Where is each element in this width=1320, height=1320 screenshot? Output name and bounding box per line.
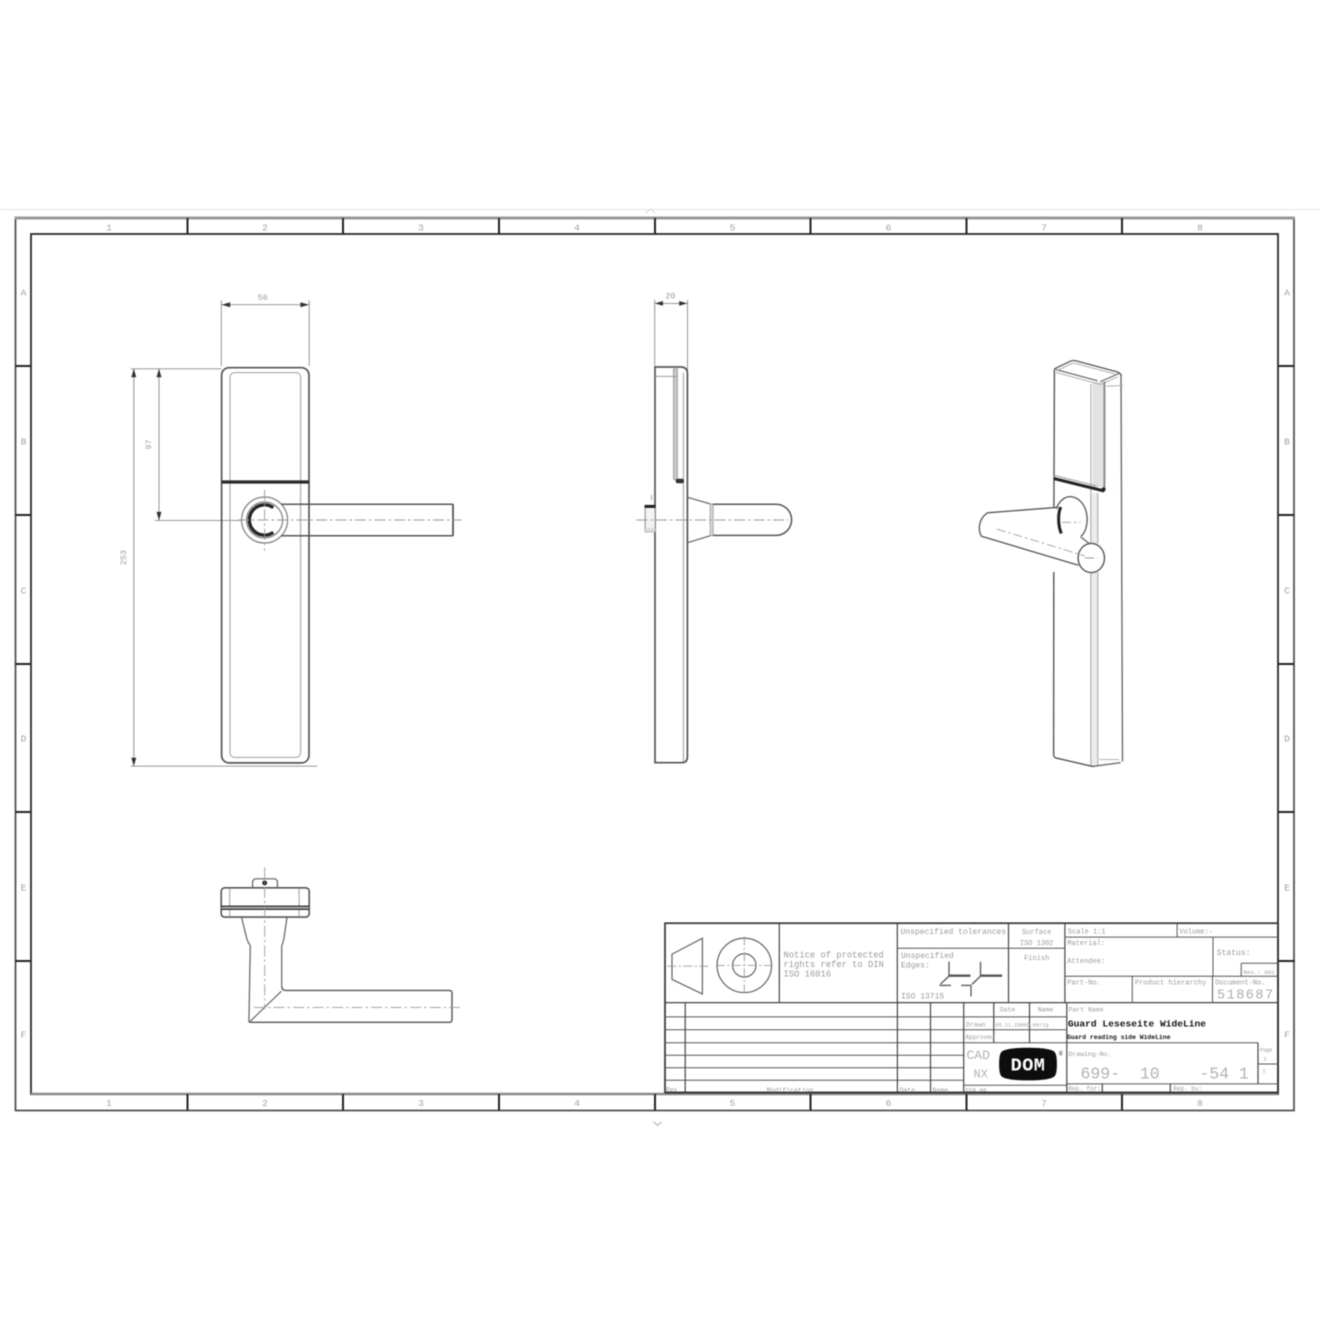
svg-text:Unspecified tolerances: Unspecified tolerances (901, 928, 1007, 937)
svg-text:5: 5 (730, 1098, 736, 1109)
svg-text:Drawn: Drawn (966, 1022, 986, 1029)
svg-text:ISO 1302: ISO 1302 (1020, 940, 1054, 948)
svg-text:Volume:-: Volume:- (1179, 928, 1213, 936)
svg-text:D: D (1284, 734, 1290, 745)
svg-text:518687: 518687 (1217, 989, 1275, 1004)
svg-text:Part-No.: Part-No. (1067, 980, 1101, 988)
svg-text:Product hierarchy: Product hierarchy (1135, 980, 1206, 988)
svg-text:Scale 1:1: Scale 1:1 (1068, 928, 1106, 936)
svg-text:6: 6 (886, 223, 892, 234)
svg-text:Guard reading side WideLine: Guard reading side WideLine (1067, 1034, 1171, 1041)
svg-text:3: 3 (418, 1098, 424, 1109)
svg-text:3: 3 (418, 223, 424, 234)
svg-text:4: 4 (574, 223, 580, 234)
svg-text:Surface: Surface (1022, 929, 1051, 937)
svg-text:1: 1 (106, 223, 112, 234)
svg-text:F: F (21, 1030, 27, 1041)
svg-text:E: E (21, 883, 27, 894)
svg-text:Part Name: Part Name (1069, 1007, 1104, 1014)
svg-text:B: B (21, 437, 27, 448)
svg-text:NX: NX (974, 1067, 988, 1081)
svg-text:Rev: Rev (666, 1087, 677, 1094)
svg-text:Guard Leseseite WideLine: Guard Leseseite WideLine (1068, 1019, 1206, 1030)
svg-text:DOM: DOM (1011, 1056, 1046, 1077)
svg-text:DIN A0: DIN A0 (966, 1087, 987, 1094)
svg-text:Document-No.: Document-No. (1215, 980, 1265, 988)
svg-text:F: F (1284, 1030, 1290, 1041)
svg-text:4: 4 (574, 1098, 580, 1109)
svg-text:Modification: Modification (767, 1087, 814, 1094)
svg-text:CAD: CAD (967, 1048, 991, 1063)
svg-text:Approved: Approved (966, 1034, 995, 1041)
svg-text:Status:: Status: (1217, 949, 1251, 958)
svg-text:Unspecified: Unspecified (901, 952, 954, 961)
svg-text:20: 20 (665, 292, 675, 302)
svg-text:7: 7 (1041, 223, 1047, 234)
svg-text:Date: Date (900, 1087, 916, 1094)
svg-text:5: 5 (730, 223, 736, 234)
svg-text:A: A (1284, 288, 1290, 299)
svg-text:97: 97 (144, 439, 154, 449)
svg-text:®: ® (1059, 1051, 1063, 1058)
svg-text:Notice of protected: Notice of protected (784, 951, 884, 961)
svg-text:Edges:: Edges: (901, 962, 930, 971)
svg-text:Material:: Material: (1067, 940, 1105, 948)
svg-text:8: 8 (1197, 223, 1203, 234)
svg-text:D: D (21, 734, 27, 745)
svg-text:rights refer to DIN: rights refer to DIN (784, 960, 884, 970)
svg-text:6: 6 (886, 1098, 892, 1109)
svg-text:56: 56 (258, 293, 268, 303)
svg-text:Rev.: 001: Rev.: 001 (1244, 969, 1276, 976)
svg-text:2: 2 (262, 223, 268, 234)
svg-text:Finish: Finish (1024, 955, 1049, 963)
svg-text:Name: Name (1038, 1007, 1054, 1014)
svg-text:Page: Page (1260, 1048, 1272, 1054)
svg-text:E: E (1284, 883, 1290, 894)
svg-text:699- 10 -54 1: 699- 10 -54 1 (1081, 1065, 1249, 1084)
svg-text:B: B (1284, 437, 1290, 448)
svg-text:Name: Name (933, 1087, 949, 1094)
svg-text:Rep. for:: Rep. for: (1068, 1086, 1100, 1093)
svg-text:ISO 13715: ISO 13715 (901, 993, 944, 1002)
svg-text:D.Kerig: D.Kerig (1027, 1022, 1049, 1028)
svg-text:05.11.1900: 05.11.1900 (996, 1022, 1027, 1028)
svg-text:8: 8 (1197, 1098, 1203, 1109)
svg-text:Rep. by:: Rep. by: (1173, 1086, 1202, 1093)
svg-text:Drawing-No.: Drawing-No. (1068, 1051, 1111, 1058)
svg-text:C: C (21, 586, 27, 597)
svg-text:2: 2 (262, 1098, 268, 1109)
svg-text:1: 1 (106, 1098, 112, 1109)
svg-text:1: 1 (1263, 1069, 1266, 1075)
svg-text:A: A (21, 288, 27, 299)
svg-text:C: C (1284, 586, 1290, 597)
svg-text:253: 253 (119, 550, 129, 565)
svg-text:Date: Date (1000, 1007, 1016, 1014)
svg-text:Attendee:: Attendee: (1067, 958, 1105, 966)
svg-text:ISO 16016: ISO 16016 (784, 970, 832, 980)
svg-text:7: 7 (1041, 1098, 1047, 1109)
